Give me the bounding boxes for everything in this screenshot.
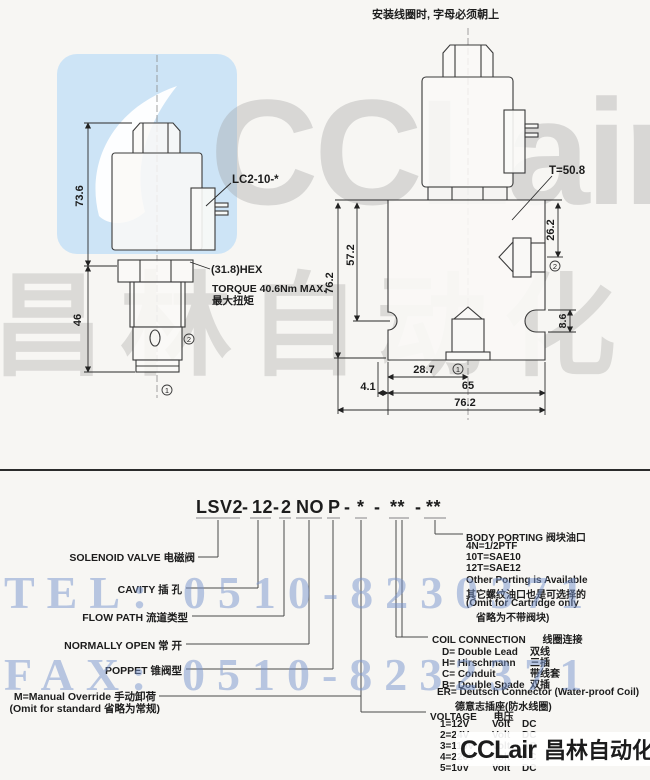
svg-text:1: 1 bbox=[165, 386, 169, 395]
front-view-port1-badge: 1 bbox=[453, 364, 463, 374]
body-porting-opt-12t: 12T=SAE12 bbox=[466, 563, 521, 574]
dim-76-2-width: 76.2 bbox=[454, 397, 475, 409]
dim-8-6: 8.6 bbox=[557, 314, 569, 329]
torque-label-cn: 最大扭矩 bbox=[212, 294, 254, 307]
t-dimension-label: T=50.8 bbox=[549, 165, 586, 177]
company-logo: CCLair昌林自动化 bbox=[456, 732, 650, 766]
label-poppet: POPPET 锥阀型 bbox=[0, 663, 182, 678]
body-porting-opt-10t: 10T=SAE10 bbox=[466, 552, 521, 563]
label-solenoid-valve: SOLENOID VALVE 电磁阀 bbox=[0, 550, 195, 565]
dim-76-2-total: 76.2 bbox=[324, 272, 336, 293]
body-porting-omit-en: (Omit for Cartridge only bbox=[466, 598, 579, 609]
dim-46: 46 bbox=[72, 314, 84, 326]
body-porting-omit-cn: 省略为不带阀块) bbox=[476, 609, 549, 624]
dim-65: 65 bbox=[462, 380, 474, 392]
svg-text:2: 2 bbox=[553, 262, 557, 271]
svg-text:2: 2 bbox=[187, 335, 191, 344]
section-divider bbox=[0, 469, 650, 471]
torque-label: TORQUE 40.6Nm MAX. bbox=[212, 283, 326, 295]
dim-57-2: 57.2 bbox=[345, 244, 357, 265]
dim-73-6: 73.6 bbox=[74, 185, 86, 206]
datasheet-page: CCLair 昌林自动化 TEL: 0510-8230371 FAX: 0510… bbox=[0, 0, 650, 780]
front-view-port2-badge: 2 bbox=[550, 261, 560, 271]
dim-4-1: 4.1 bbox=[360, 381, 375, 393]
front-view-valve bbox=[388, 28, 545, 420]
company-logo-brand: CCLair bbox=[460, 736, 536, 764]
body-porting-opt-4n: 4N=1/2PTF bbox=[466, 541, 517, 552]
label-manual-override-note: (Omit for standard 省略为常规) bbox=[0, 701, 160, 716]
side-view-valve bbox=[112, 55, 228, 398]
label-cavity: CAVITY 插 孔 bbox=[0, 582, 182, 597]
voltage-row-1: 1=12VVoltDC bbox=[440, 719, 536, 730]
dim-26-2: 26.2 bbox=[545, 219, 557, 240]
label-flow-path: FLOW PATH 流道类型 bbox=[0, 610, 188, 625]
dim-28-7: 28.7 bbox=[413, 364, 434, 376]
company-logo-cn: 昌林自动化 bbox=[544, 738, 650, 763]
body-porting-note-en: Other Porting is Available bbox=[466, 575, 588, 586]
coil-opt-er: ER= Deutsch Connector (Water-proof Coil) bbox=[437, 687, 639, 698]
valve-drawings: 73.6 46 LC2-10-* (31.8)HEX TORQUE 40.6Nm… bbox=[0, 0, 650, 470]
side-view-port2-badge: 2 bbox=[184, 334, 194, 344]
hex-label: (31.8)HEX bbox=[211, 264, 263, 276]
svg-text:1: 1 bbox=[456, 365, 460, 374]
label-normally-open: NORMALLY OPEN 常 开 bbox=[0, 638, 182, 653]
side-view-port1-badge: 1 bbox=[162, 385, 172, 395]
coil-model-label: LC2-10-* bbox=[232, 174, 279, 186]
